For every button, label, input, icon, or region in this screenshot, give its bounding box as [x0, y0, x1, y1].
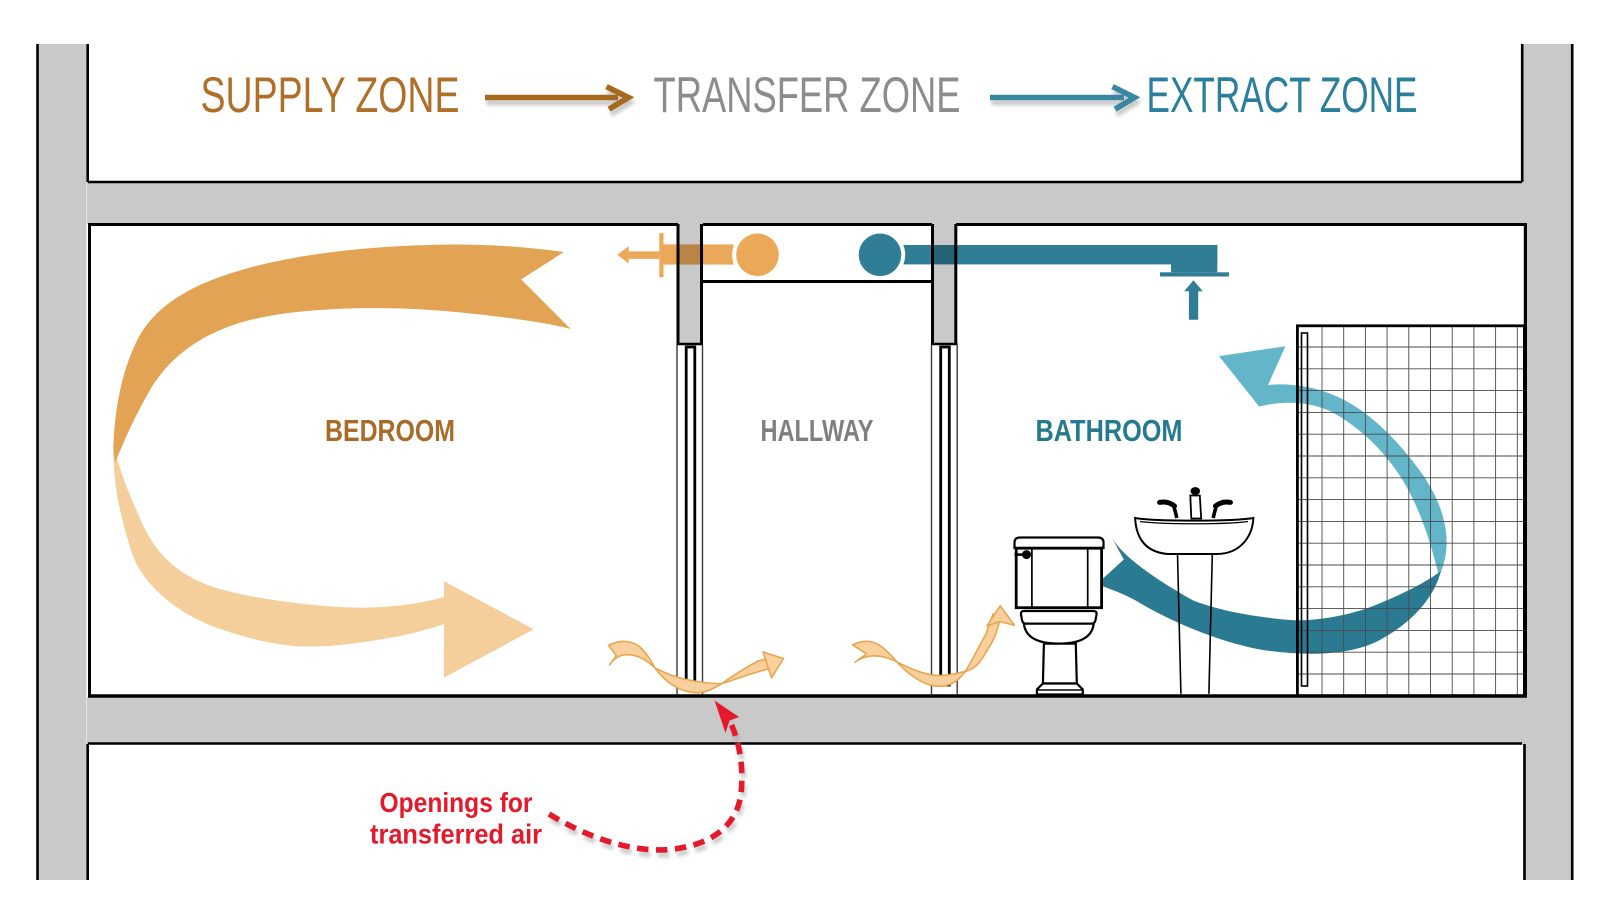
svg-text:SUPPLY ZONE: SUPPLY ZONE	[201, 67, 460, 123]
svg-text:EXTRACT ZONE: EXTRACT ZONE	[1147, 67, 1418, 123]
svg-text:TRANSFER ZONE: TRANSFER ZONE	[654, 67, 961, 123]
svg-text:transferred air: transferred air	[370, 819, 542, 850]
svg-text:BEDROOM: BEDROOM	[325, 413, 455, 448]
svg-text:HALLWAY: HALLWAY	[761, 413, 874, 448]
svg-text:Openings for: Openings for	[380, 787, 533, 818]
svg-text:BATHROOM: BATHROOM	[1036, 413, 1183, 448]
